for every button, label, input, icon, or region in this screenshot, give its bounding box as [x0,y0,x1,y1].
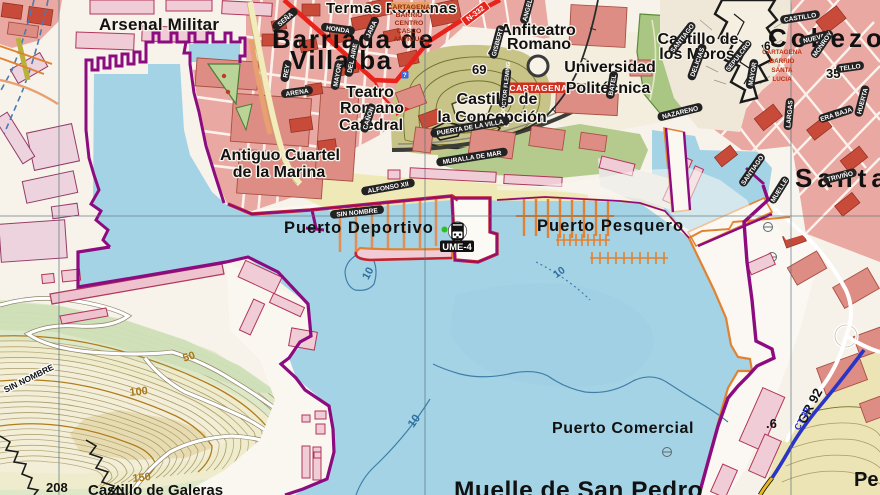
svg-text:Pe: Pe [854,469,878,491]
svg-text:Puerto Pesquero: Puerto Pesquero [537,217,684,235]
svg-text:69: 69 [472,62,486,77]
svg-text:Teatro: Teatro [346,84,394,101]
svg-text:ANTIGUO: ANTIGUO [393,36,424,43]
svg-text:UME-4: UME-4 [442,242,472,253]
svg-text:?: ? [403,72,407,79]
svg-text:LUCIA: LUCIA [772,76,792,83]
svg-text:Muelle de San Pedro: Muelle de San Pedro [454,477,703,495]
svg-text:CARTAGENA: CARTAGENA [762,49,802,56]
svg-text:Arsenal Militar: Arsenal Militar [99,15,219,34]
svg-text:Puerto Deportivo: Puerto Deportivo [284,219,434,237]
svg-text:de la Marina: de la Marina [233,164,326,181]
svg-text:Puerto Comercial: Puerto Comercial [552,420,694,437]
svg-text:150: 150 [132,471,152,485]
svg-text:CASCO: CASCO [397,28,422,35]
svg-text:Castillo de Galeras: Castillo de Galeras [88,482,223,495]
svg-text:SANTA: SANTA [771,67,793,74]
svg-text:BARRIO: BARRIO [396,12,423,19]
svg-text:Castillo de: Castillo de [457,91,538,108]
svg-text:.6: .6 [766,416,777,431]
svg-text:100: 100 [129,385,149,399]
svg-text:CARTAGENA: CARTAGENA [388,4,431,11]
svg-text:Antiguo Cuartel: Antiguo Cuartel [220,147,340,164]
svg-text:Romano: Romano [507,36,571,53]
svg-text:BARRIO: BARRIO [770,58,795,65]
svg-text:CENTRO: CENTRO [395,20,424,27]
svg-text:208: 208 [46,480,68,495]
